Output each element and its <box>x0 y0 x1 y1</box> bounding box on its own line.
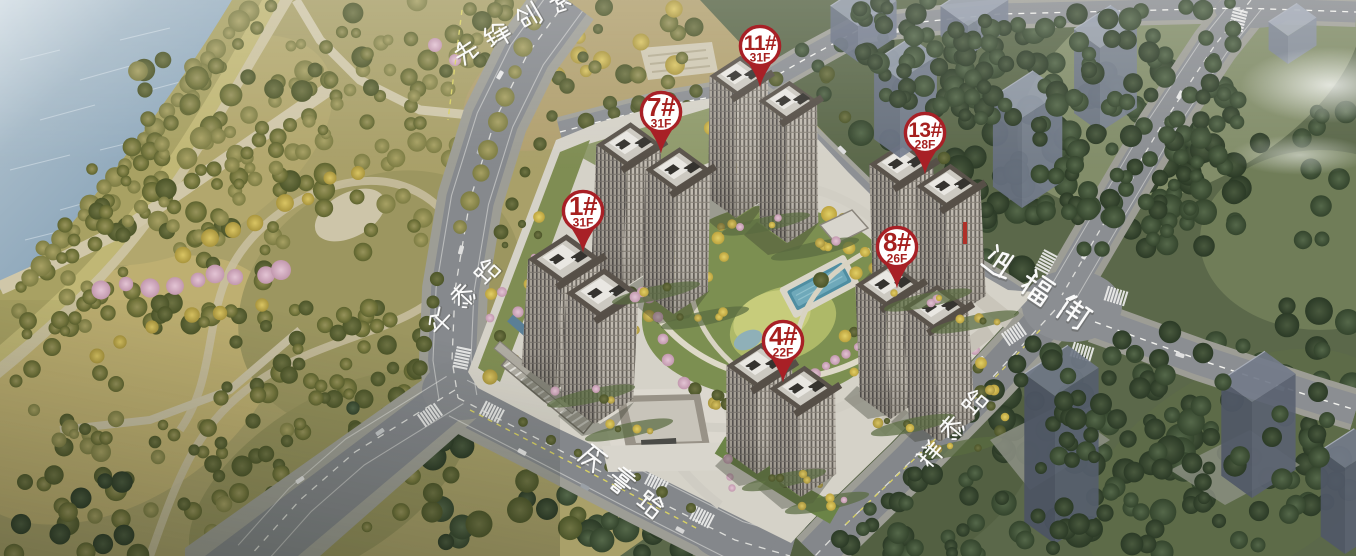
svg-text:31F: 31F <box>750 51 771 65</box>
svg-text:26F: 26F <box>887 252 908 266</box>
svg-text:28F: 28F <box>915 138 936 152</box>
svg-text:31F: 31F <box>651 117 672 131</box>
svg-text:22F: 22F <box>773 346 794 360</box>
svg-text:31F: 31F <box>573 216 594 230</box>
